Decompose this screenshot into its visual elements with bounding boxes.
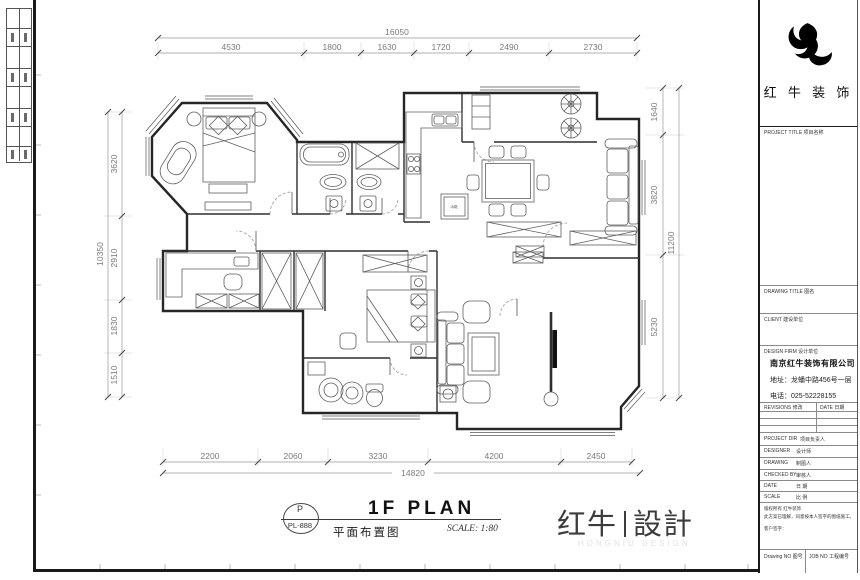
company-name: 南京红牛装饰有限公司	[770, 358, 855, 369]
furniture-kitchen	[406, 112, 468, 219]
stamp-code: PL-888	[282, 521, 318, 530]
field-en: DATE	[764, 483, 777, 489]
dimension-chain-right: 1640 3820 5230 11200	[646, 85, 684, 401]
dim-top-total: 16050	[385, 27, 409, 37]
furniture-bathroom-bottom	[308, 362, 383, 407]
plan-title-en: 1F PLAN	[368, 498, 475, 520]
divider	[760, 491, 857, 492]
strip-row	[7, 127, 31, 147]
field-cn: 项目负责人	[800, 436, 825, 443]
fridge-label: 冰箱	[451, 204, 459, 209]
field-cn: 设计师	[796, 448, 811, 455]
dim-right-seg: 3820	[649, 185, 659, 204]
dim-bottom-seg: 2200	[201, 451, 220, 461]
note-line: 此方案已理解，同意按本人签字的图纸施工。	[764, 514, 854, 520]
strip-row	[7, 109, 31, 127]
section-drawing-title: DRAWING TITLE 图名	[764, 288, 814, 295]
company-address: 地址：龙蟠中路456号一层	[770, 375, 852, 385]
field-en: SCALE	[764, 494, 780, 500]
plan-title-cn: 平面布置图	[333, 524, 401, 540]
section-client: CLIENT 建设单位	[764, 316, 803, 323]
brand-logo: 红牛設計	[557, 501, 693, 543]
scale-label: SCALE: 1:80	[447, 524, 498, 534]
field-cn: 日 期	[796, 483, 807, 490]
dim-bottom-total: 14820	[401, 468, 425, 478]
stamp-mark	[11, 73, 14, 82]
divider	[760, 345, 857, 346]
furniture-wardrobes	[262, 253, 323, 309]
title-block: 红 牛 装 饰 PROJECT TITLE 项目名称 DRAWING TITLE…	[758, 0, 858, 573]
company-phone: 电话：025-52228155	[770, 391, 836, 401]
stamp-mark	[11, 113, 14, 122]
divider	[760, 411, 857, 412]
furniture-study	[166, 253, 259, 308]
divider	[760, 313, 857, 314]
dim-top-seg: 2730	[584, 42, 603, 52]
floor-plan-canvas: 16050 4530 1800 1630 1720 2490 2730 1035…	[0, 0, 860, 580]
dim-right-total: 11200	[666, 231, 676, 254]
stamp-mark	[24, 73, 27, 82]
divider	[760, 445, 857, 446]
bull-logo-icon	[784, 14, 834, 76]
stamp-mark	[24, 33, 27, 42]
furniture-dining	[467, 146, 549, 216]
dim-right-seg: 5230	[649, 317, 659, 336]
furniture-upper-living	[513, 139, 638, 263]
dim-top-seg: 1630	[378, 42, 397, 52]
company-logo-text: 红 牛 装 饰	[760, 82, 857, 101]
dim-top-seg: 4530	[222, 42, 241, 52]
divider	[760, 469, 857, 470]
divider	[760, 432, 857, 433]
brand-left: 红牛	[557, 509, 617, 541]
divider	[760, 402, 857, 403]
furniture-lower-living	[437, 301, 558, 406]
dim-top-seg: 1720	[432, 42, 451, 52]
stamp-letter: P	[283, 504, 317, 514]
note-line: 版权所有 红牛装饰	[764, 506, 801, 512]
furniture-hallway-cabinet	[487, 222, 561, 237]
tv-panel	[553, 330, 558, 368]
divider	[760, 285, 857, 286]
dim-left-total: 10350	[95, 242, 105, 266]
field-cn: 审核人	[796, 472, 811, 479]
note-line: 客户签字：	[764, 526, 787, 532]
divider	[760, 480, 857, 481]
furniture-bathrooms-top	[300, 143, 399, 211]
divider	[760, 425, 857, 426]
dim-bottom-seg: 2450	[587, 451, 606, 461]
revisions-divider	[816, 402, 817, 432]
section-project-title: PROJECT TITLE 项目名称	[764, 129, 824, 136]
furniture-master-bedroom	[156, 108, 266, 210]
brand-divider	[624, 511, 626, 537]
furniture-bedroom2	[340, 255, 435, 357]
footer-divider	[805, 549, 806, 573]
revisions-col1: REVISIONS 修改	[764, 404, 803, 411]
dim-left-seg: 1510	[109, 365, 119, 384]
stamp-mark	[24, 113, 27, 122]
sheet-frame	[33, 0, 857, 572]
stamp-mark	[11, 150, 14, 159]
stamp-mark	[11, 33, 14, 42]
dim-top-seg: 1800	[323, 42, 342, 52]
footer-drawing-no: Drawing NO 图号	[764, 553, 803, 560]
dim-bottom-seg: 4200	[485, 451, 504, 461]
stamp-mark	[24, 150, 27, 159]
strip-row	[7, 147, 31, 161]
dim-bottom-seg: 2060	[284, 451, 303, 461]
dim-bottom-seg: 3230	[369, 451, 388, 461]
divider	[760, 418, 857, 419]
strip-row	[7, 47, 31, 69]
strip-row	[7, 9, 31, 29]
dim-left-seg: 3620	[109, 154, 119, 173]
drawing-sheet: 16050 4530 1800 1630 1720 2490 2730 1035…	[0, 0, 860, 580]
field-en: CHECKED BY	[764, 472, 797, 478]
divider	[760, 457, 857, 458]
divider	[760, 126, 857, 127]
divider	[760, 549, 857, 550]
brand-logo-sub: HONGNIU DESIGN	[578, 539, 691, 548]
field-en: PROJECT DIR	[764, 436, 797, 442]
dim-right-seg: 1640	[649, 102, 659, 121]
dim-left-seg: 1830	[109, 316, 119, 335]
frame-ticks	[36, 75, 748, 569]
strip-row	[7, 29, 31, 47]
field-en: DRAWING	[764, 460, 788, 466]
brand-right: 設計	[633, 509, 693, 541]
doors	[236, 142, 567, 375]
dimension-chain-top: 16050 4530 1800 1630 1720 2490 2730	[155, 27, 640, 60]
field-en: DESIGNER	[764, 448, 790, 454]
field-cn: 制图人	[796, 460, 811, 467]
field-cn: 比 例	[796, 494, 807, 501]
revisions-col2: DATE 日期	[820, 404, 844, 411]
furniture-utility-balcony	[472, 94, 581, 138]
strip-row	[7, 69, 31, 87]
revision-strip	[6, 8, 32, 163]
dimension-chain-left: 10350 3620 2910 1830 1510	[95, 109, 132, 400]
dimension-chain-bottom: 14820 2200 2060 3230 4200 2450	[160, 448, 643, 478]
dim-left-seg: 2910	[109, 248, 119, 267]
footer-job-no: JOB NO 工程编号	[809, 553, 849, 560]
dim-top-seg: 2490	[500, 42, 519, 52]
divider	[760, 502, 857, 503]
section-design-firm: DESIGN FIRM 设计单位	[764, 348, 818, 355]
strip-row	[7, 87, 31, 109]
